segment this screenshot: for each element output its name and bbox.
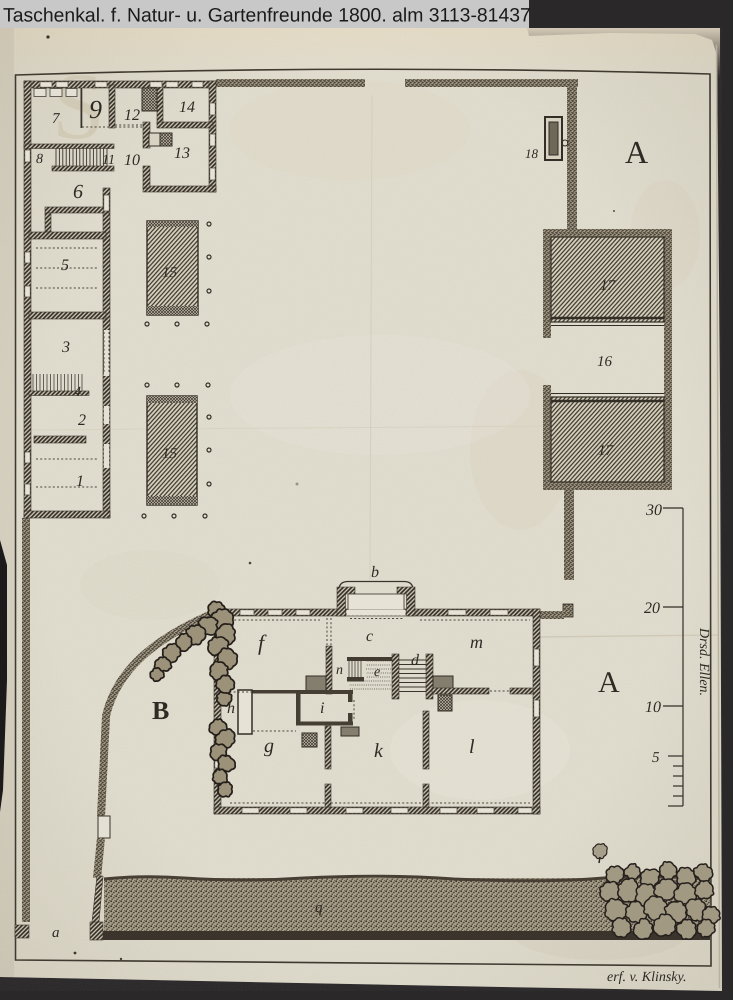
svg-text:a: a bbox=[52, 925, 60, 941]
svg-text:Taschenkal. f. Natur- u. Garte: Taschenkal. f. Natur- u. Gartenfreunde 1… bbox=[3, 5, 531, 27]
svg-text:8: 8 bbox=[36, 152, 43, 167]
svg-text:m: m bbox=[470, 632, 483, 652]
svg-text:4: 4 bbox=[74, 385, 81, 400]
svg-text:6: 6 bbox=[73, 181, 83, 203]
svg-text:20: 20 bbox=[644, 600, 660, 617]
svg-text:b: b bbox=[371, 564, 379, 581]
svg-text:n: n bbox=[336, 663, 343, 678]
svg-text:A: A bbox=[625, 134, 648, 170]
svg-text:erf. v. Klinsky.: erf. v. Klinsky. bbox=[607, 970, 686, 985]
svg-text:5: 5 bbox=[61, 257, 69, 274]
svg-text:14: 14 bbox=[179, 99, 195, 116]
svg-text:d: d bbox=[411, 652, 420, 669]
svg-text:h: h bbox=[227, 700, 235, 717]
svg-text:16: 16 bbox=[597, 354, 613, 370]
svg-text:Drsd. Ellen.: Drsd. Ellen. bbox=[696, 627, 711, 696]
svg-text:2: 2 bbox=[78, 412, 86, 429]
svg-text:q: q bbox=[315, 900, 323, 916]
svg-text:15: 15 bbox=[162, 265, 178, 281]
svg-text:c: c bbox=[366, 628, 373, 645]
svg-text:g: g bbox=[264, 735, 274, 757]
svg-text:i: i bbox=[320, 700, 324, 717]
svg-text:11: 11 bbox=[102, 153, 115, 168]
svg-text:k: k bbox=[374, 740, 384, 762]
svg-text:1: 1 bbox=[76, 473, 84, 490]
svg-text:17: 17 bbox=[600, 278, 617, 294]
svg-text:18: 18 bbox=[525, 146, 539, 161]
svg-text:17: 17 bbox=[598, 443, 615, 459]
svg-text:15: 15 bbox=[162, 446, 178, 462]
svg-text:10: 10 bbox=[124, 152, 140, 169]
svg-text:l: l bbox=[469, 736, 475, 758]
svg-text:13: 13 bbox=[174, 145, 190, 162]
svg-text:3: 3 bbox=[61, 339, 70, 356]
svg-text:12: 12 bbox=[124, 107, 140, 124]
svg-text:A: A bbox=[598, 666, 620, 699]
svg-text:9: 9 bbox=[89, 95, 102, 124]
svg-text:30: 30 bbox=[645, 502, 662, 519]
svg-text:B: B bbox=[152, 696, 169, 725]
svg-text:10: 10 bbox=[645, 699, 661, 716]
svg-text:5: 5 bbox=[652, 750, 660, 766]
svg-text:e: e bbox=[374, 665, 380, 680]
